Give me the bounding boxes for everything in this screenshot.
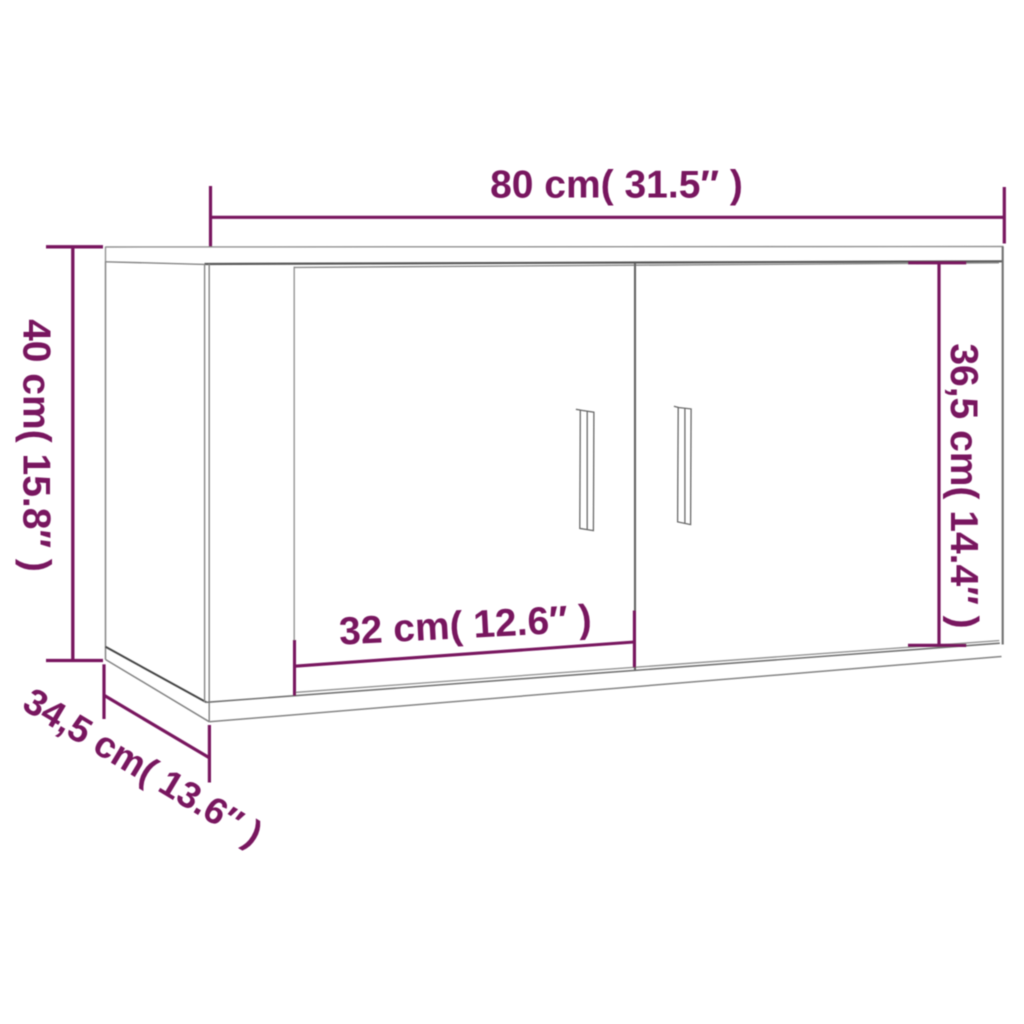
svg-text:40 cm( 15.8″ ): 40 cm( 15.8″ ) (15, 319, 58, 572)
svg-text:36,5 cm( 14.4″ ): 36,5 cm( 14.4″ ) (942, 343, 985, 628)
svg-text:80 cm( 31.5″ ): 80 cm( 31.5″ ) (490, 164, 743, 207)
